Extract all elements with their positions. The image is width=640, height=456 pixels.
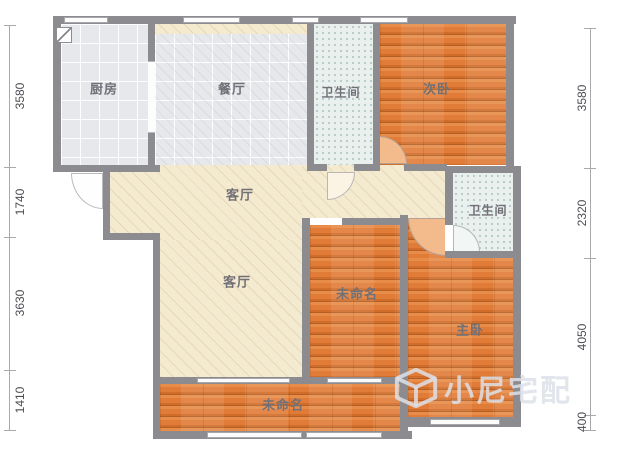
dim-left-3: 3630 bbox=[13, 290, 27, 317]
dim-tick bbox=[4, 237, 16, 238]
floor-plan: 厨房 餐厅 卫生间 次卧 客厅 客厅 未命名 卫生间 主卧 未命名 3580 1… bbox=[0, 0, 640, 456]
dim-right-3: 4050 bbox=[575, 324, 589, 351]
wall-bath-bedroom2 bbox=[373, 16, 380, 171]
master-label: 主卧 bbox=[456, 320, 484, 339]
wall-right-upper bbox=[506, 16, 514, 171]
wall-bath-right-left-upper bbox=[445, 166, 453, 225]
cube-logo-icon bbox=[393, 366, 439, 410]
dim-right-1: 3580 bbox=[575, 85, 589, 112]
bath-right-door-opening bbox=[445, 225, 453, 251]
wall-kitchen-bottom bbox=[53, 165, 160, 172]
wall-mid-c bbox=[404, 164, 447, 171]
wall-kitchen-right-lower bbox=[148, 133, 155, 172]
wall-bath-right-bottom bbox=[445, 251, 521, 258]
wall-bath-right-top bbox=[445, 166, 521, 173]
window-living-balcony-1 bbox=[197, 378, 290, 383]
hallway-floor bbox=[302, 165, 445, 218]
dim-tick bbox=[4, 370, 16, 371]
wall-room-mid-left bbox=[302, 218, 310, 384]
window-kitchen bbox=[64, 17, 108, 23]
dim-tick bbox=[584, 258, 596, 259]
dim-line-right bbox=[590, 28, 591, 430]
dim-tick bbox=[4, 25, 16, 26]
dining-top-strip bbox=[155, 24, 307, 34]
entry-door-swing bbox=[71, 173, 103, 209]
dim-left-2: 1740 bbox=[13, 189, 27, 216]
living-main-floor bbox=[160, 240, 302, 377]
dim-right-2: 2320 bbox=[575, 200, 589, 227]
window-master-bottom bbox=[430, 419, 500, 425]
living-upper-label: 客厅 bbox=[226, 185, 254, 204]
wall-mid-b bbox=[354, 164, 377, 171]
wall-kitchen-right-upper bbox=[148, 16, 155, 61]
dim-tick bbox=[4, 167, 16, 168]
dim-tick bbox=[584, 168, 596, 169]
dim-tick bbox=[584, 28, 596, 29]
dim-right-4: 400 bbox=[575, 412, 589, 432]
wall-top bbox=[53, 16, 516, 24]
dim-tick bbox=[4, 430, 16, 431]
window-dining bbox=[183, 17, 240, 23]
kitchen-label: 厨房 bbox=[90, 79, 118, 98]
window-balcony-bottom-2 bbox=[306, 432, 382, 438]
living-upper-floor bbox=[110, 165, 302, 240]
balcony-label: 未命名 bbox=[262, 395, 304, 414]
wall-living-left bbox=[153, 240, 160, 439]
wall-room-mid-top bbox=[342, 218, 408, 225]
bath-top-label: 卫生间 bbox=[321, 84, 360, 101]
wall-entry-step bbox=[103, 233, 160, 240]
kitchen-door-opening bbox=[148, 61, 155, 133]
window-bath-top bbox=[292, 17, 319, 23]
bath-right-label: 卫生间 bbox=[468, 202, 507, 219]
window-bedroom2 bbox=[360, 17, 408, 23]
watermark-text: 小尼宅配 bbox=[444, 366, 572, 410]
wall-entry-left bbox=[103, 172, 110, 240]
wall-mid-a bbox=[307, 164, 327, 171]
wall-dining-bath bbox=[307, 16, 314, 171]
window-room-mid-balcony bbox=[327, 378, 382, 383]
dim-left-1: 3580 bbox=[13, 83, 27, 110]
dining-label: 餐厅 bbox=[218, 79, 246, 98]
dim-left-4: 1410 bbox=[13, 387, 27, 414]
living-label: 客厅 bbox=[223, 272, 251, 291]
window-balcony-bottom-1 bbox=[207, 432, 302, 438]
room-mid-label: 未命名 bbox=[336, 284, 378, 303]
north-arrow-icon bbox=[56, 27, 72, 43]
bedroom2-label: 次卧 bbox=[423, 79, 451, 98]
